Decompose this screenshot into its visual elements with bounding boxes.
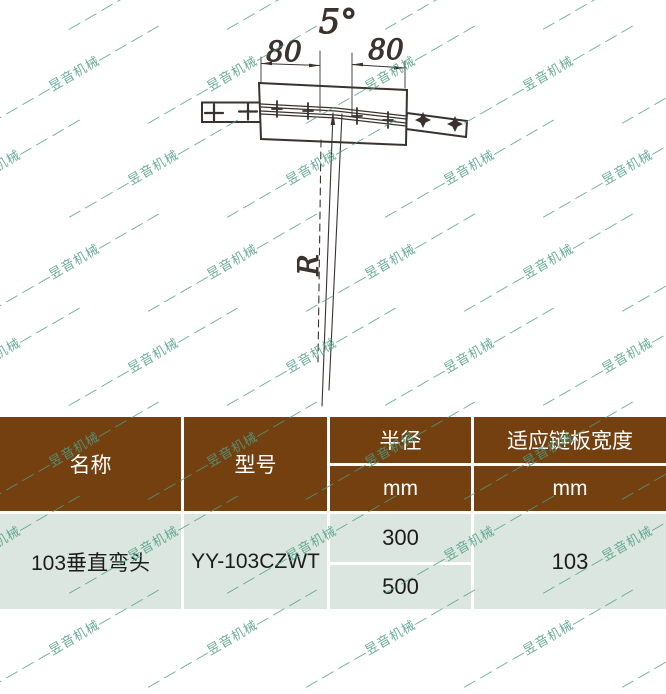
radius-label: R [292, 254, 325, 276]
elbow-technical-drawing: 5° 80 80 R [0, 0, 666, 417]
center-dashed-line [318, 140, 321, 362]
left-arm [202, 103, 261, 123]
header-model: 型号 [184, 417, 327, 511]
cell-product-name: 103垂直弯头 [0, 514, 181, 609]
header-radius: 半径 [330, 417, 471, 463]
spec-table: 名称 型号 半径 mm 适应链板宽度 mm 103垂直弯头 YY-103CZWT… [0, 417, 666, 609]
cell-plate-width: 103 [474, 514, 666, 609]
cell-radius-500: 500 [330, 565, 471, 609]
elbow-drawing-svg: 5° 80 80 R [0, 0, 666, 417]
dim-label-left: 80 [266, 35, 302, 68]
header-radius-unit: mm [330, 466, 471, 511]
header-name: 名称 [0, 417, 181, 511]
cell-model-number: YY-103CZWT [184, 514, 327, 609]
dim-label-right: 80 [368, 33, 404, 66]
right-arm [406, 112, 467, 137]
header-plate-width: 适应链板宽度 [474, 417, 666, 463]
header-plate-width-unit: mm [474, 466, 666, 511]
cell-radius-300: 300 [330, 514, 471, 562]
angle-label: 5° [319, 2, 358, 42]
